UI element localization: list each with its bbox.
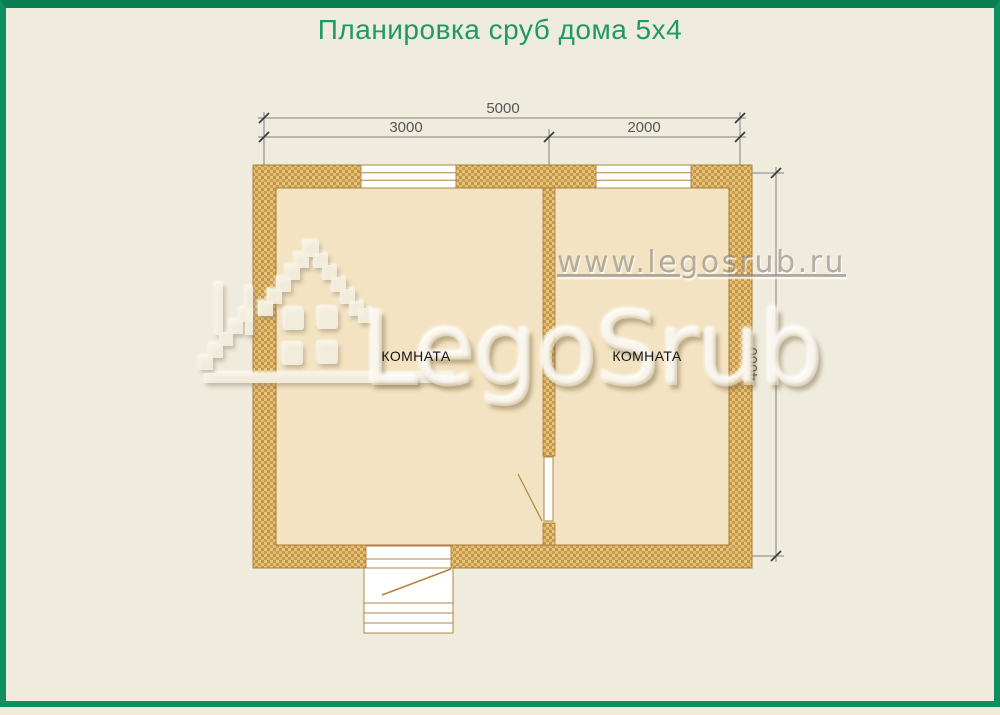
entrance-door [366, 546, 451, 568]
dimension-height: 4000 [744, 347, 761, 380]
room-label-left: КОМНАТА [381, 348, 450, 364]
floor [276, 188, 729, 545]
window-right-room [596, 165, 691, 188]
page: { "page": { "title": "Планировка сруб до… [0, 0, 1000, 707]
dimension-left-room-width: 3000 [389, 119, 422, 136]
window-left-room [361, 165, 456, 188]
floor-plan-drawing: 5000 3000 2000 4000 [6, 8, 1000, 715]
outer-wall [253, 165, 752, 568]
dimension-total-width: 5000 [486, 100, 519, 117]
room-label-right: КОМНАТА [612, 348, 681, 364]
porch-steps [364, 568, 453, 633]
dimension-right-room-width: 2000 [627, 119, 660, 136]
